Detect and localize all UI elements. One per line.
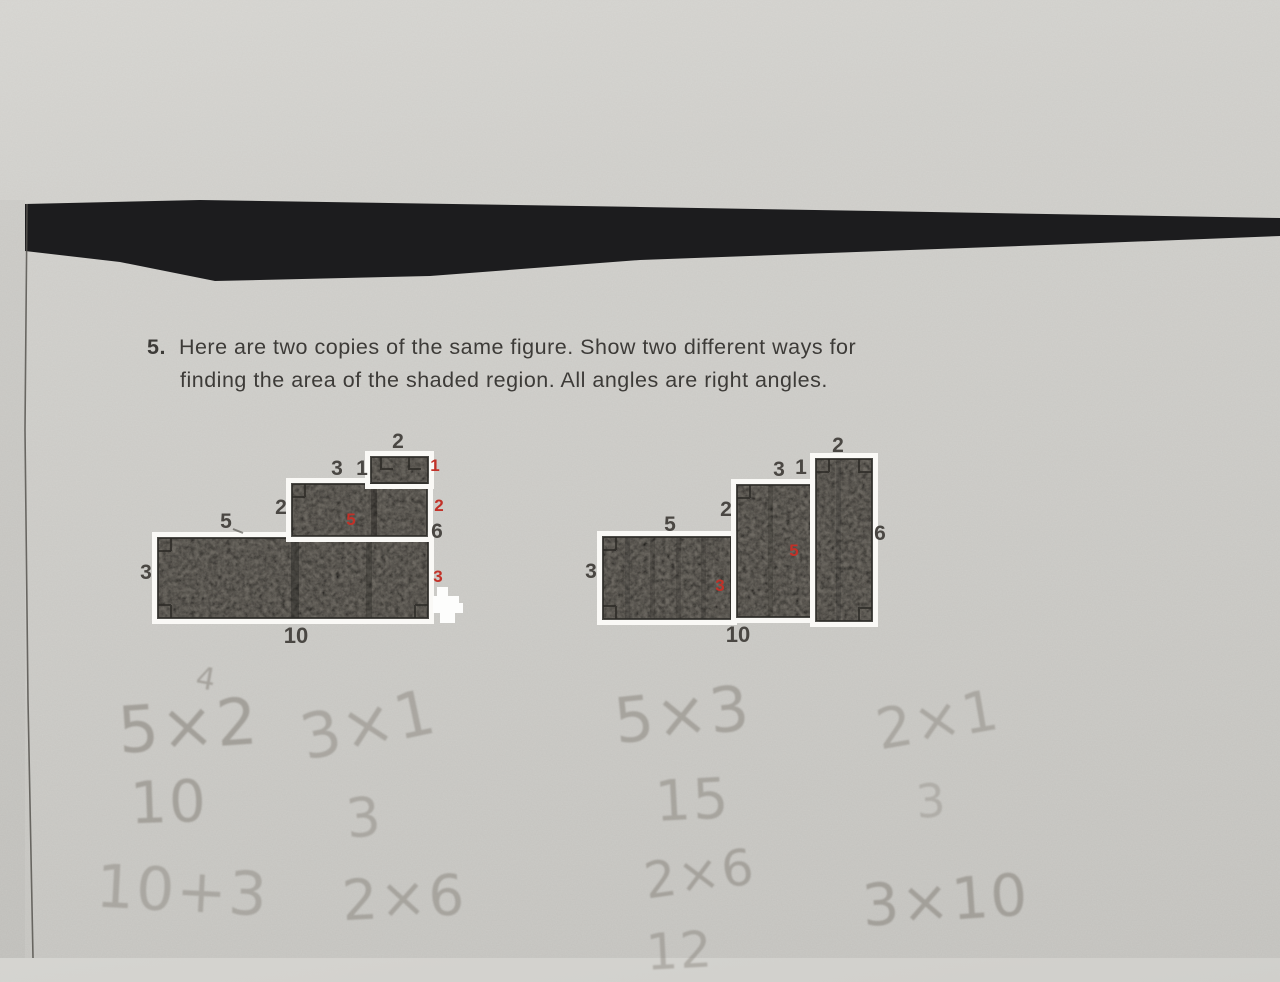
shaded-rect-middle [737, 485, 813, 617]
problem-statement: 5.Here are two copies of the same figure… [147, 331, 856, 397]
dim-label-step-height: 2 [720, 498, 732, 522]
dim-label-top-width: 2 [392, 430, 404, 454]
pencil-expr-0: 5×2 [116, 685, 262, 769]
dim-label-mid-top-right: 1 [356, 457, 368, 481]
pencil-expr-7: 3×10 [860, 860, 1032, 940]
dim-label-mid-width: 3 [773, 458, 785, 482]
problem-number: 5. [147, 335, 166, 359]
shaded-rect-left [603, 537, 731, 619]
shaded-rect-right [816, 459, 872, 621]
problem-line1: Here are two copies of the same figure. … [179, 335, 856, 359]
dim-label-bottom-width: 10 [726, 622, 750, 648]
dim-label-bottom-height: 3 [140, 561, 152, 585]
dim-label-right-width: 2 [832, 434, 844, 458]
pencil-expr-5: 2×6 [340, 863, 467, 934]
dim-label-left-width: 5 [664, 513, 676, 537]
problem-line1-wrap: 5.Here are two copies of the same figure… [147, 331, 856, 364]
pencil-expr-2: 5×3 [611, 671, 755, 758]
dim-label-mid-height: 2 [275, 496, 287, 520]
dim-label-bottom-left-width: 5 [220, 510, 232, 534]
red-annotation-mid-width: 5 [346, 510, 355, 530]
red-annotation-mid-height: 2 [434, 496, 443, 516]
pencil-result-3: 3 [914, 773, 949, 829]
dim-label-bottom-width: 10 [284, 623, 308, 649]
red-annotation-top-height: 1 [430, 456, 439, 476]
dim-label-total-height: 6 [431, 520, 443, 544]
red-annotation-left-height: 3 [715, 576, 724, 596]
dim-label-mid-top-left: 3 [331, 457, 343, 481]
problem-line2: finding the area of the shaded region. A… [180, 364, 856, 397]
red-annotation-bottom-height: 3 [433, 567, 442, 587]
pencil-expr-4: 10+3 [94, 852, 270, 931]
worksheet-photo: 5.Here are two copies of the same figure… [0, 0, 1280, 958]
pencil-result-6: 12 [645, 920, 716, 981]
dim-label-offset-height: 1 [795, 456, 807, 480]
red-annotation-mid-height: 5 [789, 541, 798, 561]
pencil-result-2: 15 [653, 766, 732, 835]
dim-label-total-height: 6 [874, 522, 886, 546]
dim-label-left-height: 3 [585, 560, 597, 584]
shaded-rect-middle [292, 484, 427, 536]
pencil-result-0: 10 [129, 767, 209, 838]
pencil-result-1: 3 [343, 785, 385, 851]
